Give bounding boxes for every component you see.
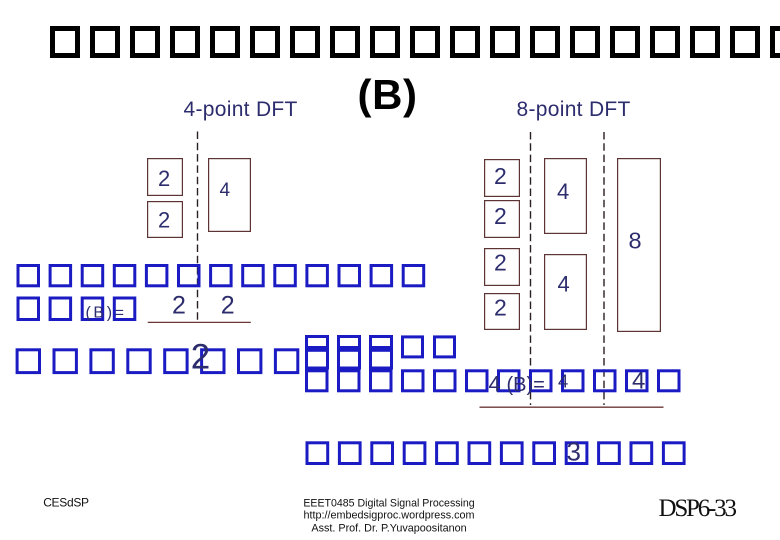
svg-text:4: 4 [632,368,645,395]
svg-text:4-point DFT: 4-point DFT [184,98,298,121]
svg-text:2: 2 [494,250,507,276]
svg-text:2: 2 [494,203,507,229]
svg-text:2: 2 [158,207,170,232]
svg-text:DSP6-33: DSP6-33 [659,495,737,522]
svg-text:3: 3 [567,436,581,466]
svg-text:2: 2 [494,163,507,189]
svg-text:Asst. Prof. Dr. P.Yuvapoositan: Asst. Prof. Dr. P.Yuvapoositanon [311,523,466,535]
svg-text:http://embedsigproc.wordpress.: http://embedsigproc.wordpress.com [303,509,474,521]
svg-text:(B)=: (B)= [86,305,127,322]
svg-text:2: 2 [221,292,235,320]
svg-text:4: 4 [558,371,568,392]
svg-text:(B)=: (B)= [507,374,545,396]
svg-text:2: 2 [191,338,210,377]
svg-text:8-point DFT: 8-point DFT [517,98,631,121]
svg-text:2: 2 [172,292,186,320]
svg-text:4: 4 [558,272,570,297]
svg-text:4: 4 [489,372,501,397]
svg-text:(B): (B) [358,71,418,118]
svg-text:8: 8 [629,227,642,253]
svg-text:EEET0485 Digital Signal Proces: EEET0485 Digital Signal Processing [303,498,474,510]
svg-text:CESdSP: CESdSP [43,495,89,509]
svg-text:2: 2 [158,166,170,191]
svg-text:4: 4 [557,179,569,204]
svg-text:4: 4 [220,180,231,201]
svg-text:2: 2 [494,295,507,321]
